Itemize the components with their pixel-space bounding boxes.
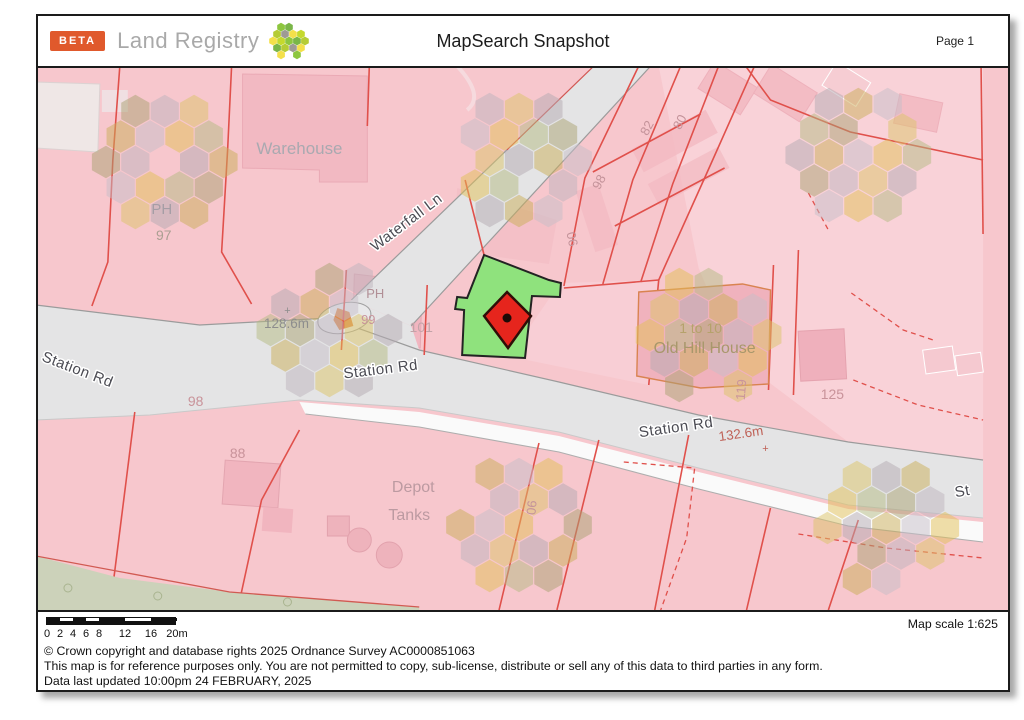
snapshot-page: BETA Land Registry MapSearch Snapshot Pa… xyxy=(36,14,1010,692)
map-label: PH xyxy=(151,201,172,218)
map-label: 06 xyxy=(523,500,539,516)
map-scale-bar: 02468121620m xyxy=(46,617,216,643)
map-label: Depot xyxy=(392,479,435,496)
copyright-line: © Crown copyright and database rights 20… xyxy=(44,644,1002,659)
scale-tick-label: 16 xyxy=(145,627,157,642)
marker-dot xyxy=(503,314,512,323)
map-label: 1 to 10 xyxy=(679,320,722,336)
map-label: 119 xyxy=(733,379,750,401)
scale-tick-label: 12 xyxy=(119,627,131,642)
map-label: Old Hill House xyxy=(654,340,756,357)
map-label: + xyxy=(284,305,290,317)
map-label: 98 xyxy=(188,393,204,409)
map-label: Tanks xyxy=(388,507,430,524)
tank xyxy=(376,542,402,568)
page-title: MapSearch Snapshot xyxy=(38,31,1008,52)
map-label: 97 xyxy=(156,227,172,243)
building xyxy=(262,507,294,533)
warehouse-building xyxy=(243,74,368,182)
tank xyxy=(327,516,349,536)
map-label: 101 xyxy=(410,319,434,335)
building xyxy=(222,460,281,508)
updated-line: Data last updated 10:00pm 24 FEBRUARY, 2… xyxy=(44,674,1002,689)
map-canvas: WarehousePH97Waterfall Ln06988280PH99101… xyxy=(38,68,1008,610)
page-header: BETA Land Registry MapSearch Snapshot Pa… xyxy=(38,16,1008,68)
page-number: Page 1 xyxy=(936,34,974,48)
map-label: + xyxy=(762,443,768,455)
scale-tick-label: 0 xyxy=(44,627,50,642)
scale-bar-segment xyxy=(151,618,177,621)
map-label: 06 xyxy=(563,230,581,247)
page-footer: 02468121620m Map scale 1:625 © Crown cop… xyxy=(38,612,1008,690)
scale-bar-segment xyxy=(47,618,60,621)
map-label: Warehouse xyxy=(256,139,342,158)
watermark-hexagon xyxy=(278,50,286,59)
scale-bar-segment xyxy=(60,618,73,621)
map-label: 99 xyxy=(361,312,375,327)
map-label: 125 xyxy=(821,386,845,402)
map-label: PH xyxy=(366,286,384,301)
map-scale-text: Map scale 1:625 xyxy=(908,617,998,632)
scale-tick-label: 2 xyxy=(57,627,63,642)
disclaimer-line: This map is for reference purposes only.… xyxy=(44,659,1002,674)
scale-bar-segment xyxy=(86,618,99,621)
map-label: 88 xyxy=(230,445,246,461)
building xyxy=(955,352,983,375)
building xyxy=(798,329,846,381)
scale-bar-segment xyxy=(73,618,86,621)
scale-tick-label: 4 xyxy=(70,627,76,642)
building xyxy=(38,82,100,152)
scale-tick-label: 20m xyxy=(166,627,187,642)
scale-bar-graphic xyxy=(46,617,176,625)
map-area: WarehousePH97Waterfall Ln06988280PH99101… xyxy=(38,68,1008,612)
scale-bar-segment xyxy=(125,618,151,621)
screen: BETA Land Registry MapSearch Snapshot Pa… xyxy=(0,0,1024,720)
scale-bar-segment xyxy=(99,618,125,621)
tank xyxy=(347,528,371,552)
scale-tick-label: 6 xyxy=(83,627,89,642)
building xyxy=(923,346,956,374)
watermark-hexagon xyxy=(293,50,301,59)
scale-tick-label: 8 xyxy=(96,627,102,642)
map-label: 128.6m xyxy=(264,316,309,331)
